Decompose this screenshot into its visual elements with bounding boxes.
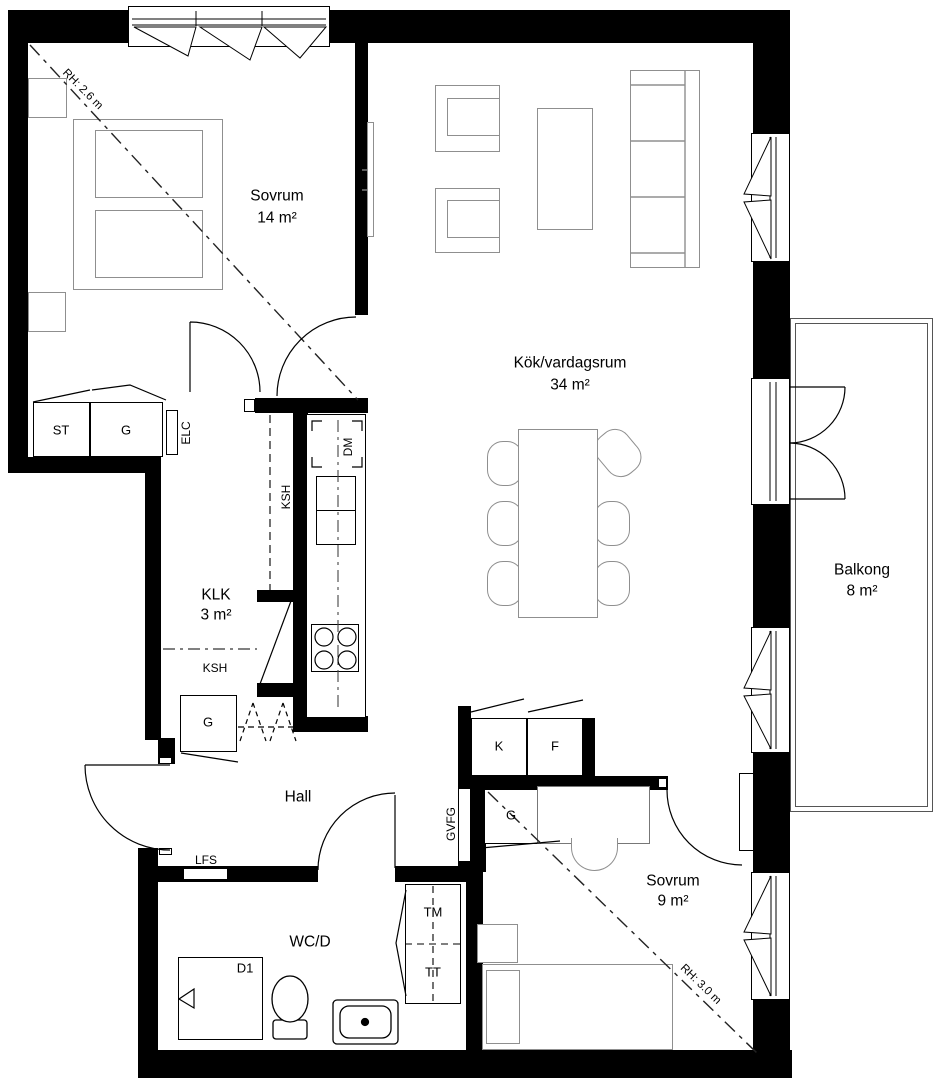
- lfs-niche: [183, 868, 228, 880]
- nightstand-bedroom2: [477, 924, 518, 963]
- label-tt: TT: [425, 966, 441, 979]
- wall-left: [8, 43, 28, 473]
- gvfg-shaft: [458, 788, 471, 862]
- label-gvfg: GVFG: [445, 807, 457, 841]
- wall-right-3: [753, 503, 790, 628]
- wall-wc-top-left: [158, 866, 318, 882]
- wall-bedroom1-south: [8, 457, 160, 473]
- label-d1: D1: [237, 962, 254, 975]
- label-bedroom1-name: Sovrum: [250, 188, 303, 204]
- wall-right-1: [753, 10, 790, 135]
- duct-diagonal: [260, 601, 291, 684]
- label-g-bedroom2: G: [506, 809, 516, 822]
- armchair-2: [435, 188, 500, 253]
- wall-above-counter: [255, 398, 368, 413]
- label-wcd: WC/D: [289, 934, 330, 950]
- dining-chair: [594, 561, 630, 606]
- label-f: F: [551, 740, 559, 753]
- label-bedroom2-ceiling-height: RH: 3.0 m: [677, 963, 722, 1007]
- coat-rack-dashes: [240, 703, 296, 741]
- label-kitchen-name: Kök/vardagsrum: [514, 355, 627, 371]
- kitchen-sink-1: [316, 476, 356, 511]
- wall-klk-left: [145, 457, 161, 740]
- label-bedroom2-name: Sovrum: [646, 873, 699, 889]
- label-st: ST: [53, 424, 70, 437]
- toilet: [272, 976, 308, 1039]
- stove: [311, 624, 359, 672]
- doorframe-entry-bottom: [159, 848, 172, 855]
- doorframe-entry-top: [159, 757, 172, 764]
- window-living-1: [751, 133, 790, 262]
- bed-single-pillow: [486, 970, 520, 1044]
- wall-duct-bottom: [257, 683, 293, 697]
- sink: [333, 1000, 398, 1044]
- label-elc: ELC: [180, 421, 192, 444]
- wall-bottom: [138, 1050, 792, 1078]
- wall-duct-top: [257, 590, 293, 602]
- label-lfs: LFS: [195, 854, 217, 866]
- label-balcony-area: 8 m²: [847, 583, 878, 599]
- label-g1: G: [121, 424, 131, 437]
- wall-kf-right: [583, 718, 595, 776]
- dining-chair: [594, 501, 630, 546]
- label-hall: Hall: [285, 789, 312, 805]
- label-kitchen-area: 34 m²: [550, 377, 590, 393]
- wall-top: [8, 10, 790, 43]
- doorframe-bedroom2: [658, 778, 667, 788]
- window-bedroom2: [751, 872, 790, 1000]
- elc-cabinet: [166, 410, 178, 455]
- wall-right-5: [753, 1000, 790, 1078]
- label-klk-name: KLK: [201, 587, 230, 603]
- wall-right-4: [753, 752, 790, 872]
- tv: [367, 122, 374, 237]
- bed-pillow-2: [95, 210, 203, 278]
- coffee-table: [537, 108, 593, 230]
- kitchen-sink-2: [316, 510, 356, 545]
- label-k: K: [495, 740, 504, 753]
- desk-chair: [571, 838, 618, 871]
- shaft-slot: [739, 773, 754, 851]
- label-balcony-name: Balkong: [834, 562, 890, 578]
- wall-kitchen-bottom: [293, 716, 368, 732]
- label-ksh-lower: KSH: [203, 662, 228, 674]
- washer-dryer-column: [405, 884, 461, 1004]
- wall-gvfg-bottom: [458, 862, 471, 872]
- nightstand-1: [28, 78, 67, 118]
- label-klk-area: 3 m²: [201, 607, 232, 623]
- bed-pillow-1: [95, 130, 203, 198]
- wall-wc-left: [138, 848, 158, 1078]
- sliding-door-line-ghall: [181, 753, 238, 762]
- label-ksh-upper: KSH: [280, 485, 292, 510]
- sofa: [630, 70, 700, 268]
- label-tm: TM: [424, 906, 443, 919]
- sliding-door-lines-kf: [471, 699, 583, 712]
- wall-kf-left: [458, 706, 471, 790]
- doorframe-bedroom1: [244, 399, 255, 412]
- desk: [537, 786, 650, 844]
- label-g-hall: G: [203, 716, 213, 729]
- window-living-2: [751, 627, 790, 753]
- armchair-1: [435, 85, 500, 152]
- nightstand-2: [28, 292, 66, 332]
- label-dm: DM: [342, 438, 354, 457]
- armchair-2-seat: [447, 200, 499, 238]
- balcony-door: [751, 378, 790, 505]
- armchair-1-seat: [447, 98, 499, 136]
- sliding-door-lines-stg: [33, 385, 166, 402]
- window-bedroom1: [128, 6, 330, 47]
- wall-right-2: [753, 262, 790, 380]
- dining-table: [518, 429, 598, 618]
- floor-plan: Sovrum 14 m² RH: 2.6 m Kök/vardagsrum 34…: [0, 0, 943, 1080]
- label-bedroom2-area: 9 m²: [658, 893, 689, 909]
- kitchen-counter: [306, 414, 366, 718]
- label-bedroom1-area: 14 m²: [257, 210, 297, 226]
